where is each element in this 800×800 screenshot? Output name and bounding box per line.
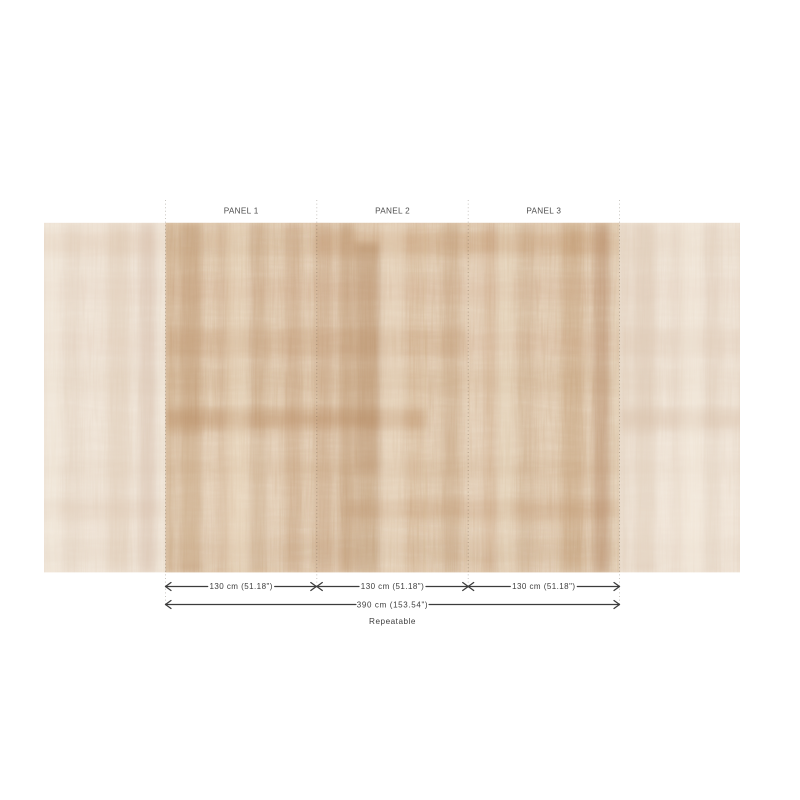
svg-text:390 cm (153.54"): 390 cm (153.54") bbox=[357, 600, 429, 609]
svg-text:130 cm (51.18"): 130 cm (51.18") bbox=[209, 582, 272, 591]
svg-text:130 cm (51.18"): 130 cm (51.18") bbox=[361, 582, 424, 591]
svg-text:PANEL 1: PANEL 1 bbox=[224, 206, 259, 215]
svg-text:PANEL 2: PANEL 2 bbox=[375, 206, 410, 215]
svg-text:PANEL 3: PANEL 3 bbox=[526, 206, 561, 215]
svg-text:Repeatable: Repeatable bbox=[369, 617, 416, 626]
svg-text:130 cm (51.18"): 130 cm (51.18") bbox=[512, 582, 575, 591]
